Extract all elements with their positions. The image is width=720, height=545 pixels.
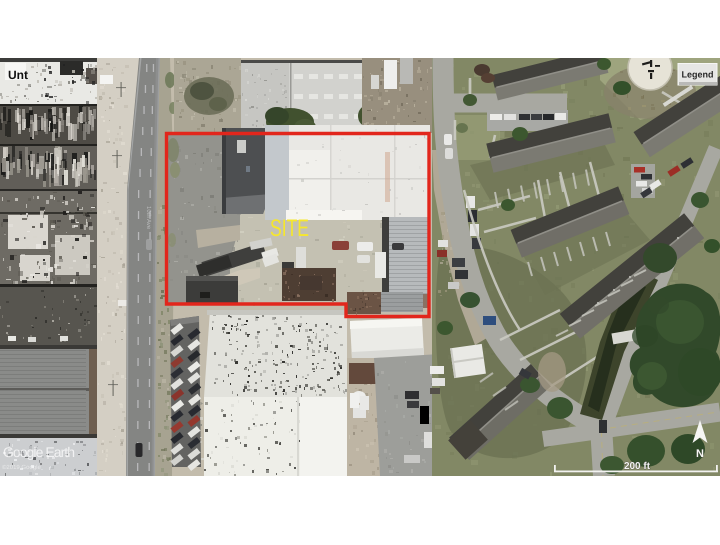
svg-text:200 ft: 200 ft xyxy=(624,461,651,472)
svg-text:Google Earth: Google Earth xyxy=(3,444,75,460)
svg-text:Unt: Unt xyxy=(8,68,28,82)
svg-text:N: N xyxy=(696,448,704,460)
svg-text:Legend: Legend xyxy=(681,70,713,80)
svg-text:SITE: SITE xyxy=(270,215,309,242)
svg-text:10th Ave: 10th Ave xyxy=(145,206,152,230)
svg-text:©2019 Google: ©2019 Google xyxy=(2,464,41,471)
